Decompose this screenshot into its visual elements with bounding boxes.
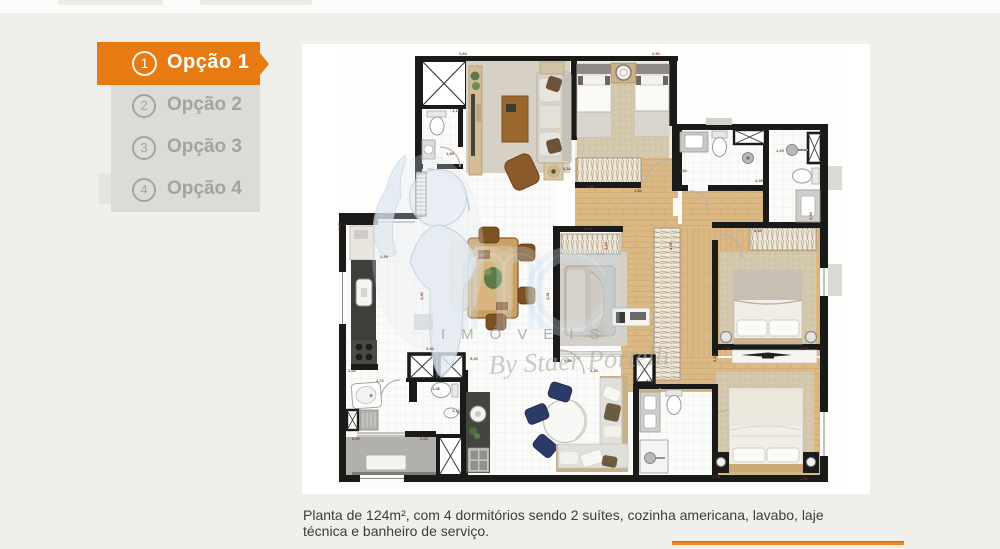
svg-text:1,40: 1,40 [419, 291, 424, 300]
svg-text:4,09: 4,09 [646, 378, 655, 383]
svg-text:2,29: 2,29 [380, 254, 389, 259]
svg-text:IMÓVEIS: IMÓVEIS [441, 326, 616, 343]
svg-text:2,54: 2,54 [808, 211, 813, 220]
svg-text:1,34: 1,34 [679, 168, 688, 173]
svg-text:1,14: 1,14 [452, 408, 461, 413]
svg-text:4,34: 4,34 [563, 166, 572, 171]
svg-text:2,55: 2,55 [722, 346, 731, 351]
svg-text:3,19: 3,19 [800, 346, 809, 351]
svg-text:5,25: 5,25 [470, 356, 479, 361]
svg-text:1,39: 1,39 [586, 184, 595, 189]
svg-text:2,94: 2,94 [426, 346, 435, 351]
svg-text:2,50: 2,50 [652, 51, 661, 56]
svg-text:2,64: 2,64 [459, 51, 468, 56]
svg-text:5,49: 5,49 [584, 226, 593, 231]
svg-text:3,98: 3,98 [564, 358, 573, 363]
svg-text:2,19: 2,19 [712, 474, 721, 479]
svg-text:1,29: 1,29 [776, 148, 785, 153]
svg-text:1,72: 1,72 [376, 378, 385, 383]
svg-text:2,05: 2,05 [420, 436, 429, 441]
svg-text:3,19: 3,19 [712, 353, 717, 362]
svg-text:3,14: 3,14 [603, 241, 608, 250]
svg-text:3,57: 3,57 [337, 221, 342, 230]
svg-text:1,14: 1,14 [452, 108, 461, 113]
svg-text:1,31: 1,31 [545, 291, 550, 300]
svg-text:4,34: 4,34 [590, 368, 599, 373]
svg-text:1,48: 1,48 [432, 386, 441, 391]
svg-text:2,29: 2,29 [755, 178, 764, 183]
svg-text:1,54: 1,54 [348, 368, 357, 373]
svg-text:1,54: 1,54 [634, 188, 643, 193]
svg-text:4,09: 4,09 [668, 241, 673, 250]
svg-text:1,54: 1,54 [800, 476, 809, 481]
svg-text:6,90: 6,90 [352, 436, 361, 441]
svg-text:5,49: 5,49 [754, 228, 763, 233]
svg-text:1,49: 1,49 [446, 151, 455, 156]
